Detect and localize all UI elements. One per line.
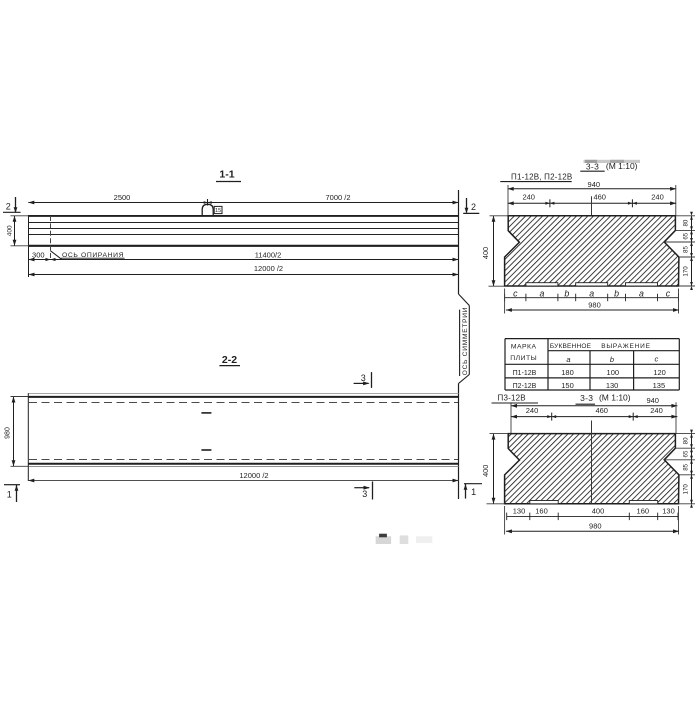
svg-text:130: 130 bbox=[662, 507, 675, 516]
svg-text:a: a bbox=[566, 355, 570, 364]
svg-text:b: b bbox=[610, 355, 614, 364]
svg-text:b: b bbox=[564, 288, 569, 298]
svg-text:ВЫРАЖЕНИЕ: ВЫРАЖЕНИЕ bbox=[601, 343, 651, 350]
svg-text:3: 3 bbox=[362, 489, 367, 499]
svg-text:2-2: 2-2 bbox=[222, 354, 237, 366]
svg-text:120: 120 bbox=[653, 368, 666, 377]
svg-text:180: 180 bbox=[561, 368, 574, 377]
svg-text:400: 400 bbox=[481, 465, 490, 477]
svg-text:2: 2 bbox=[6, 201, 11, 211]
svg-text:980: 980 bbox=[589, 522, 602, 531]
svg-text:980: 980 bbox=[5, 427, 12, 439]
svg-text:240: 240 bbox=[522, 193, 535, 202]
svg-text:3: 3 bbox=[361, 373, 366, 383]
svg-text:460: 460 bbox=[593, 193, 606, 202]
svg-text:2: 2 bbox=[471, 202, 476, 212]
svg-text:1: 1 bbox=[7, 490, 12, 500]
svg-text:170: 170 bbox=[683, 484, 690, 495]
svg-text:135: 135 bbox=[653, 381, 666, 390]
svg-text:П1-12В, П2-12В: П1-12В, П2-12В bbox=[511, 173, 572, 182]
svg-text:100: 100 bbox=[607, 368, 620, 377]
svg-text:7000 /2: 7000 /2 bbox=[325, 193, 350, 202]
svg-text:300: 300 bbox=[32, 250, 45, 259]
svg-text:130: 130 bbox=[513, 507, 526, 516]
svg-text:c: c bbox=[666, 288, 671, 298]
svg-text:160: 160 bbox=[637, 507, 650, 516]
svg-text:150: 150 bbox=[561, 381, 574, 390]
svg-text:a: a bbox=[539, 288, 544, 298]
svg-text:12000 /2: 12000 /2 bbox=[254, 264, 283, 273]
svg-text:12000 /2: 12000 /2 bbox=[239, 471, 268, 480]
svg-text:3-3: 3-3 bbox=[586, 162, 599, 172]
svg-text:(М 1:10): (М 1:10) bbox=[606, 161, 638, 171]
svg-text:П2-12В: П2-12В bbox=[513, 383, 537, 390]
svg-text:400: 400 bbox=[592, 507, 605, 516]
svg-text:240: 240 bbox=[650, 406, 663, 415]
svg-text:400: 400 bbox=[7, 225, 14, 236]
svg-text:МАРКА: МАРКА bbox=[511, 344, 537, 351]
svg-text:240: 240 bbox=[526, 406, 539, 415]
svg-text:ОСЬ СИММЕТРИИ: ОСЬ СИММЕТРИИ bbox=[462, 307, 469, 376]
svg-text:П1-12В: П1-12В bbox=[513, 370, 537, 377]
svg-text:160: 160 bbox=[535, 507, 548, 516]
svg-text:(М 1:10): (М 1:10) bbox=[599, 393, 631, 403]
svg-text:ПЛИТЫ: ПЛИТЫ bbox=[510, 355, 537, 362]
svg-text:170: 170 bbox=[683, 266, 690, 277]
svg-text:1-1: 1-1 bbox=[219, 169, 234, 181]
svg-text:П3-12В: П3-12В bbox=[498, 394, 526, 403]
svg-text:c: c bbox=[513, 288, 518, 298]
svg-text:85: 85 bbox=[683, 463, 690, 470]
svg-text:65: 65 bbox=[683, 232, 690, 239]
svg-text:15: 15 bbox=[215, 208, 221, 214]
svg-text:460: 460 bbox=[595, 406, 608, 415]
svg-text:1: 1 bbox=[471, 487, 476, 497]
svg-text:130: 130 bbox=[606, 381, 619, 390]
svg-text:2500: 2500 bbox=[114, 193, 131, 202]
svg-text:85: 85 bbox=[683, 246, 690, 253]
svg-text:240: 240 bbox=[651, 193, 664, 202]
svg-text:80: 80 bbox=[683, 219, 690, 226]
svg-text:b: b bbox=[614, 288, 619, 298]
svg-text:65: 65 bbox=[683, 450, 690, 457]
svg-text:940: 940 bbox=[588, 180, 601, 189]
svg-text:c: c bbox=[655, 354, 659, 363]
svg-text:980: 980 bbox=[588, 300, 601, 309]
svg-text:3-3: 3-3 bbox=[580, 393, 593, 403]
svg-text:a: a bbox=[639, 288, 644, 298]
svg-text:940: 940 bbox=[646, 396, 659, 405]
svg-text:80: 80 bbox=[683, 437, 690, 444]
svg-text:БУКВЕННОЕ: БУКВЕННОЕ bbox=[550, 343, 592, 350]
svg-text:11400/2: 11400/2 bbox=[255, 250, 282, 259]
svg-text:a: a bbox=[589, 288, 594, 298]
svg-text:400: 400 bbox=[481, 247, 490, 259]
